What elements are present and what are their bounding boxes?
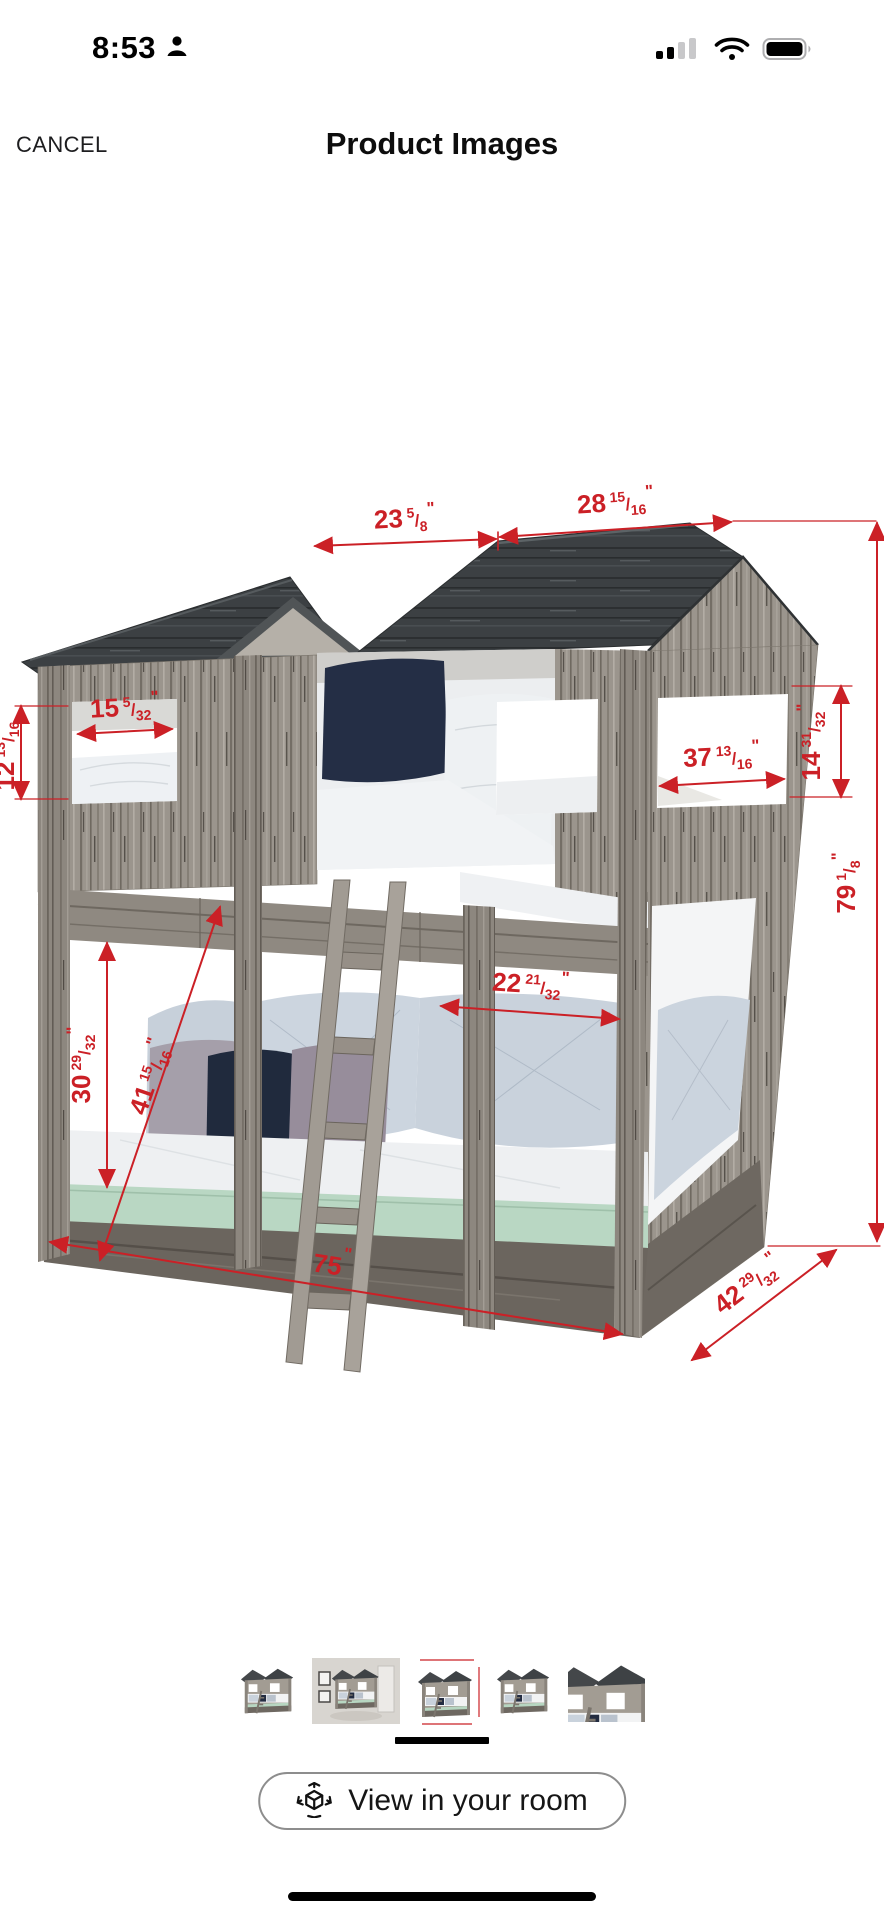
dim-window-left-height: 1213/16" [0,714,22,791]
thumbnail-4[interactable] [496,1662,554,1723]
thumbnail-1[interactable] [240,1662,298,1723]
home-indicator[interactable] [288,1892,596,1901]
thumbnail-5[interactable] [568,1660,645,1725]
bed-structure [22,523,818,1372]
screen: 8:53 [0,0,884,1920]
thumbnail-strip [0,1655,884,1730]
dimension-line [315,539,496,546]
dim-roof-left: 235/8" [373,498,436,536]
view-in-room-button[interactable]: View in your room [258,1772,626,1830]
ar-cube-icon [296,1782,332,1821]
bunk-bed-illustration: 235/8" 2815/16" 155/32" 1213/16" 3713/16… [0,0,884,1500]
thumbnail-3-selected[interactable] [414,1655,482,1730]
thumbnail-selected-indicator [395,1737,489,1744]
dim-roof-right: 2815/16" [576,481,655,521]
product-image[interactable]: 235/8" 2815/16" 155/32" 1213/16" 3713/16… [0,0,884,1500]
view-in-room-label: View in your room [348,1784,588,1818]
thumbnail-2[interactable] [312,1658,400,1727]
dim-total-height: 791/8" [828,852,863,913]
